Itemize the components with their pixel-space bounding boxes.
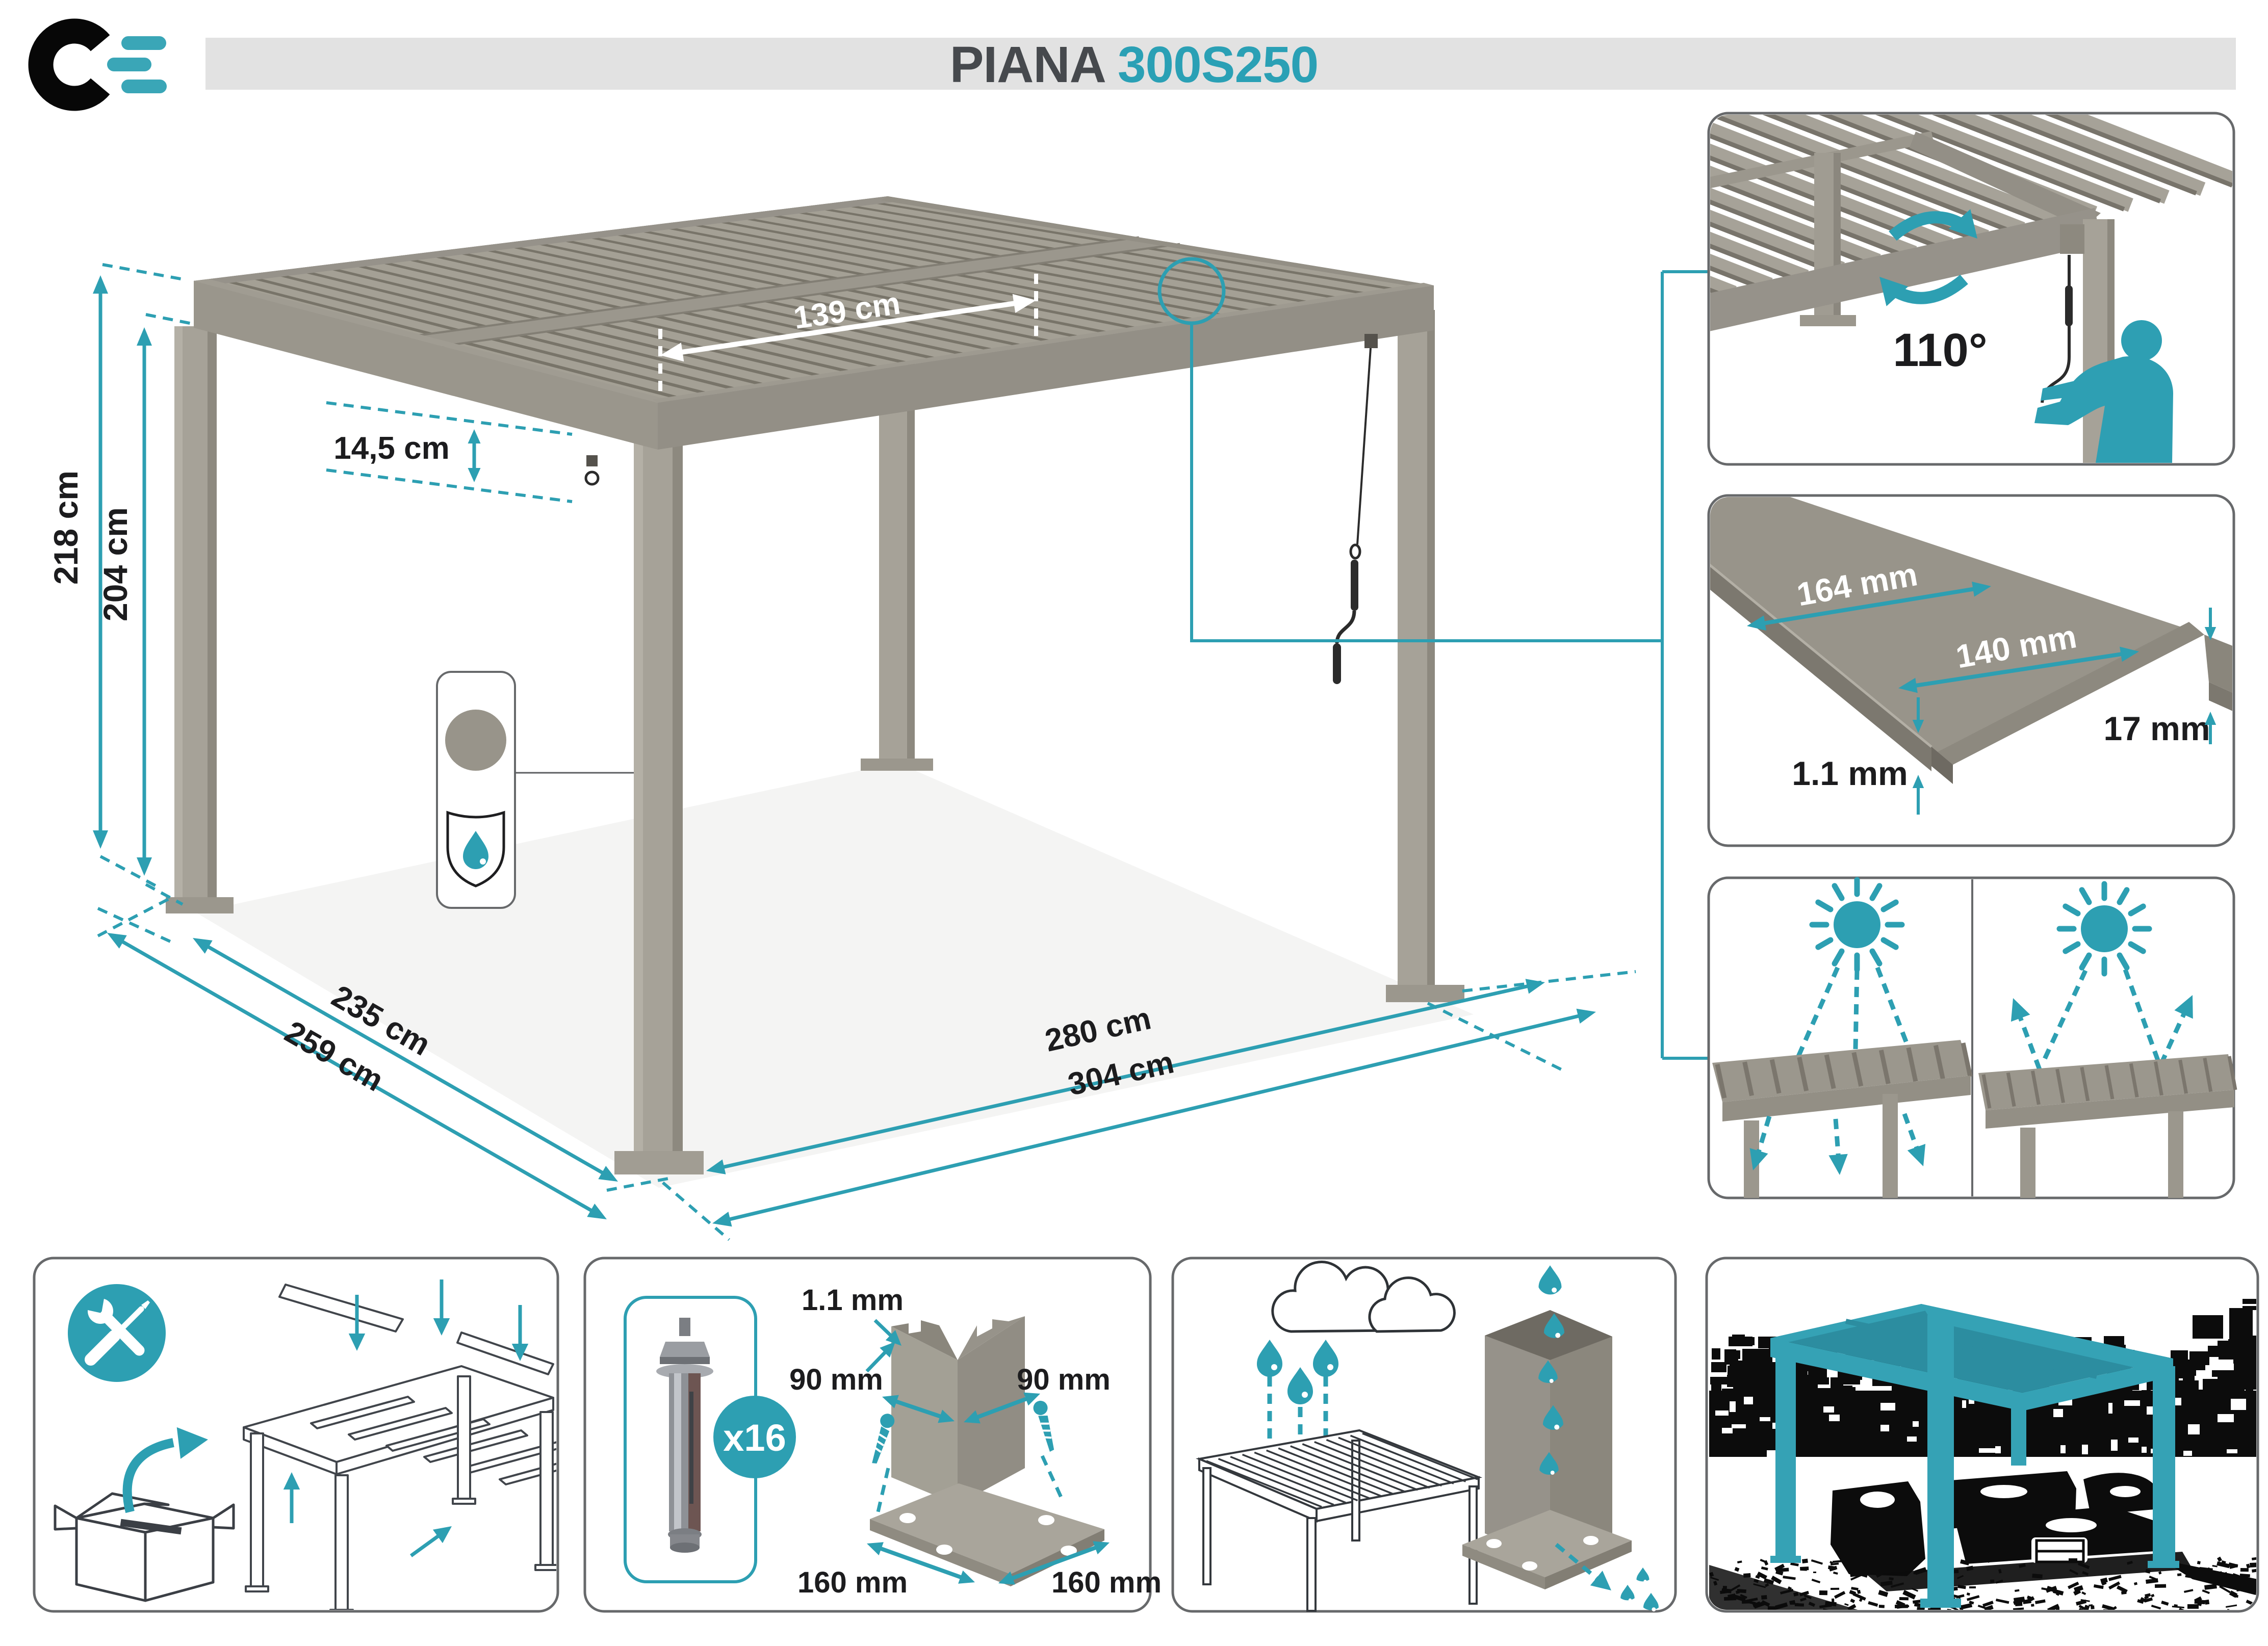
svg-text:PIANA 300S250: PIANA 300S250 <box>950 36 1319 93</box>
svg-text:110°: 110° <box>1893 324 1987 376</box>
svg-text:90 mm: 90 mm <box>1017 1363 1111 1396</box>
svg-text:17 mm: 17 mm <box>2103 710 2210 747</box>
svg-text:1.1 mm: 1.1 mm <box>1792 754 1908 792</box>
svg-text:204 cm: 204 cm <box>96 507 134 621</box>
svg-text:90 mm: 90 mm <box>789 1363 883 1396</box>
svg-text:x16: x16 <box>723 1417 786 1459</box>
svg-text:160 mm: 160 mm <box>1051 1566 1162 1599</box>
svg-text:218 cm: 218 cm <box>47 471 85 585</box>
svg-text:160 mm: 160 mm <box>797 1566 908 1599</box>
svg-text:14,5 cm: 14,5 cm <box>333 431 450 466</box>
svg-text:1.1 mm: 1.1 mm <box>802 1284 904 1317</box>
